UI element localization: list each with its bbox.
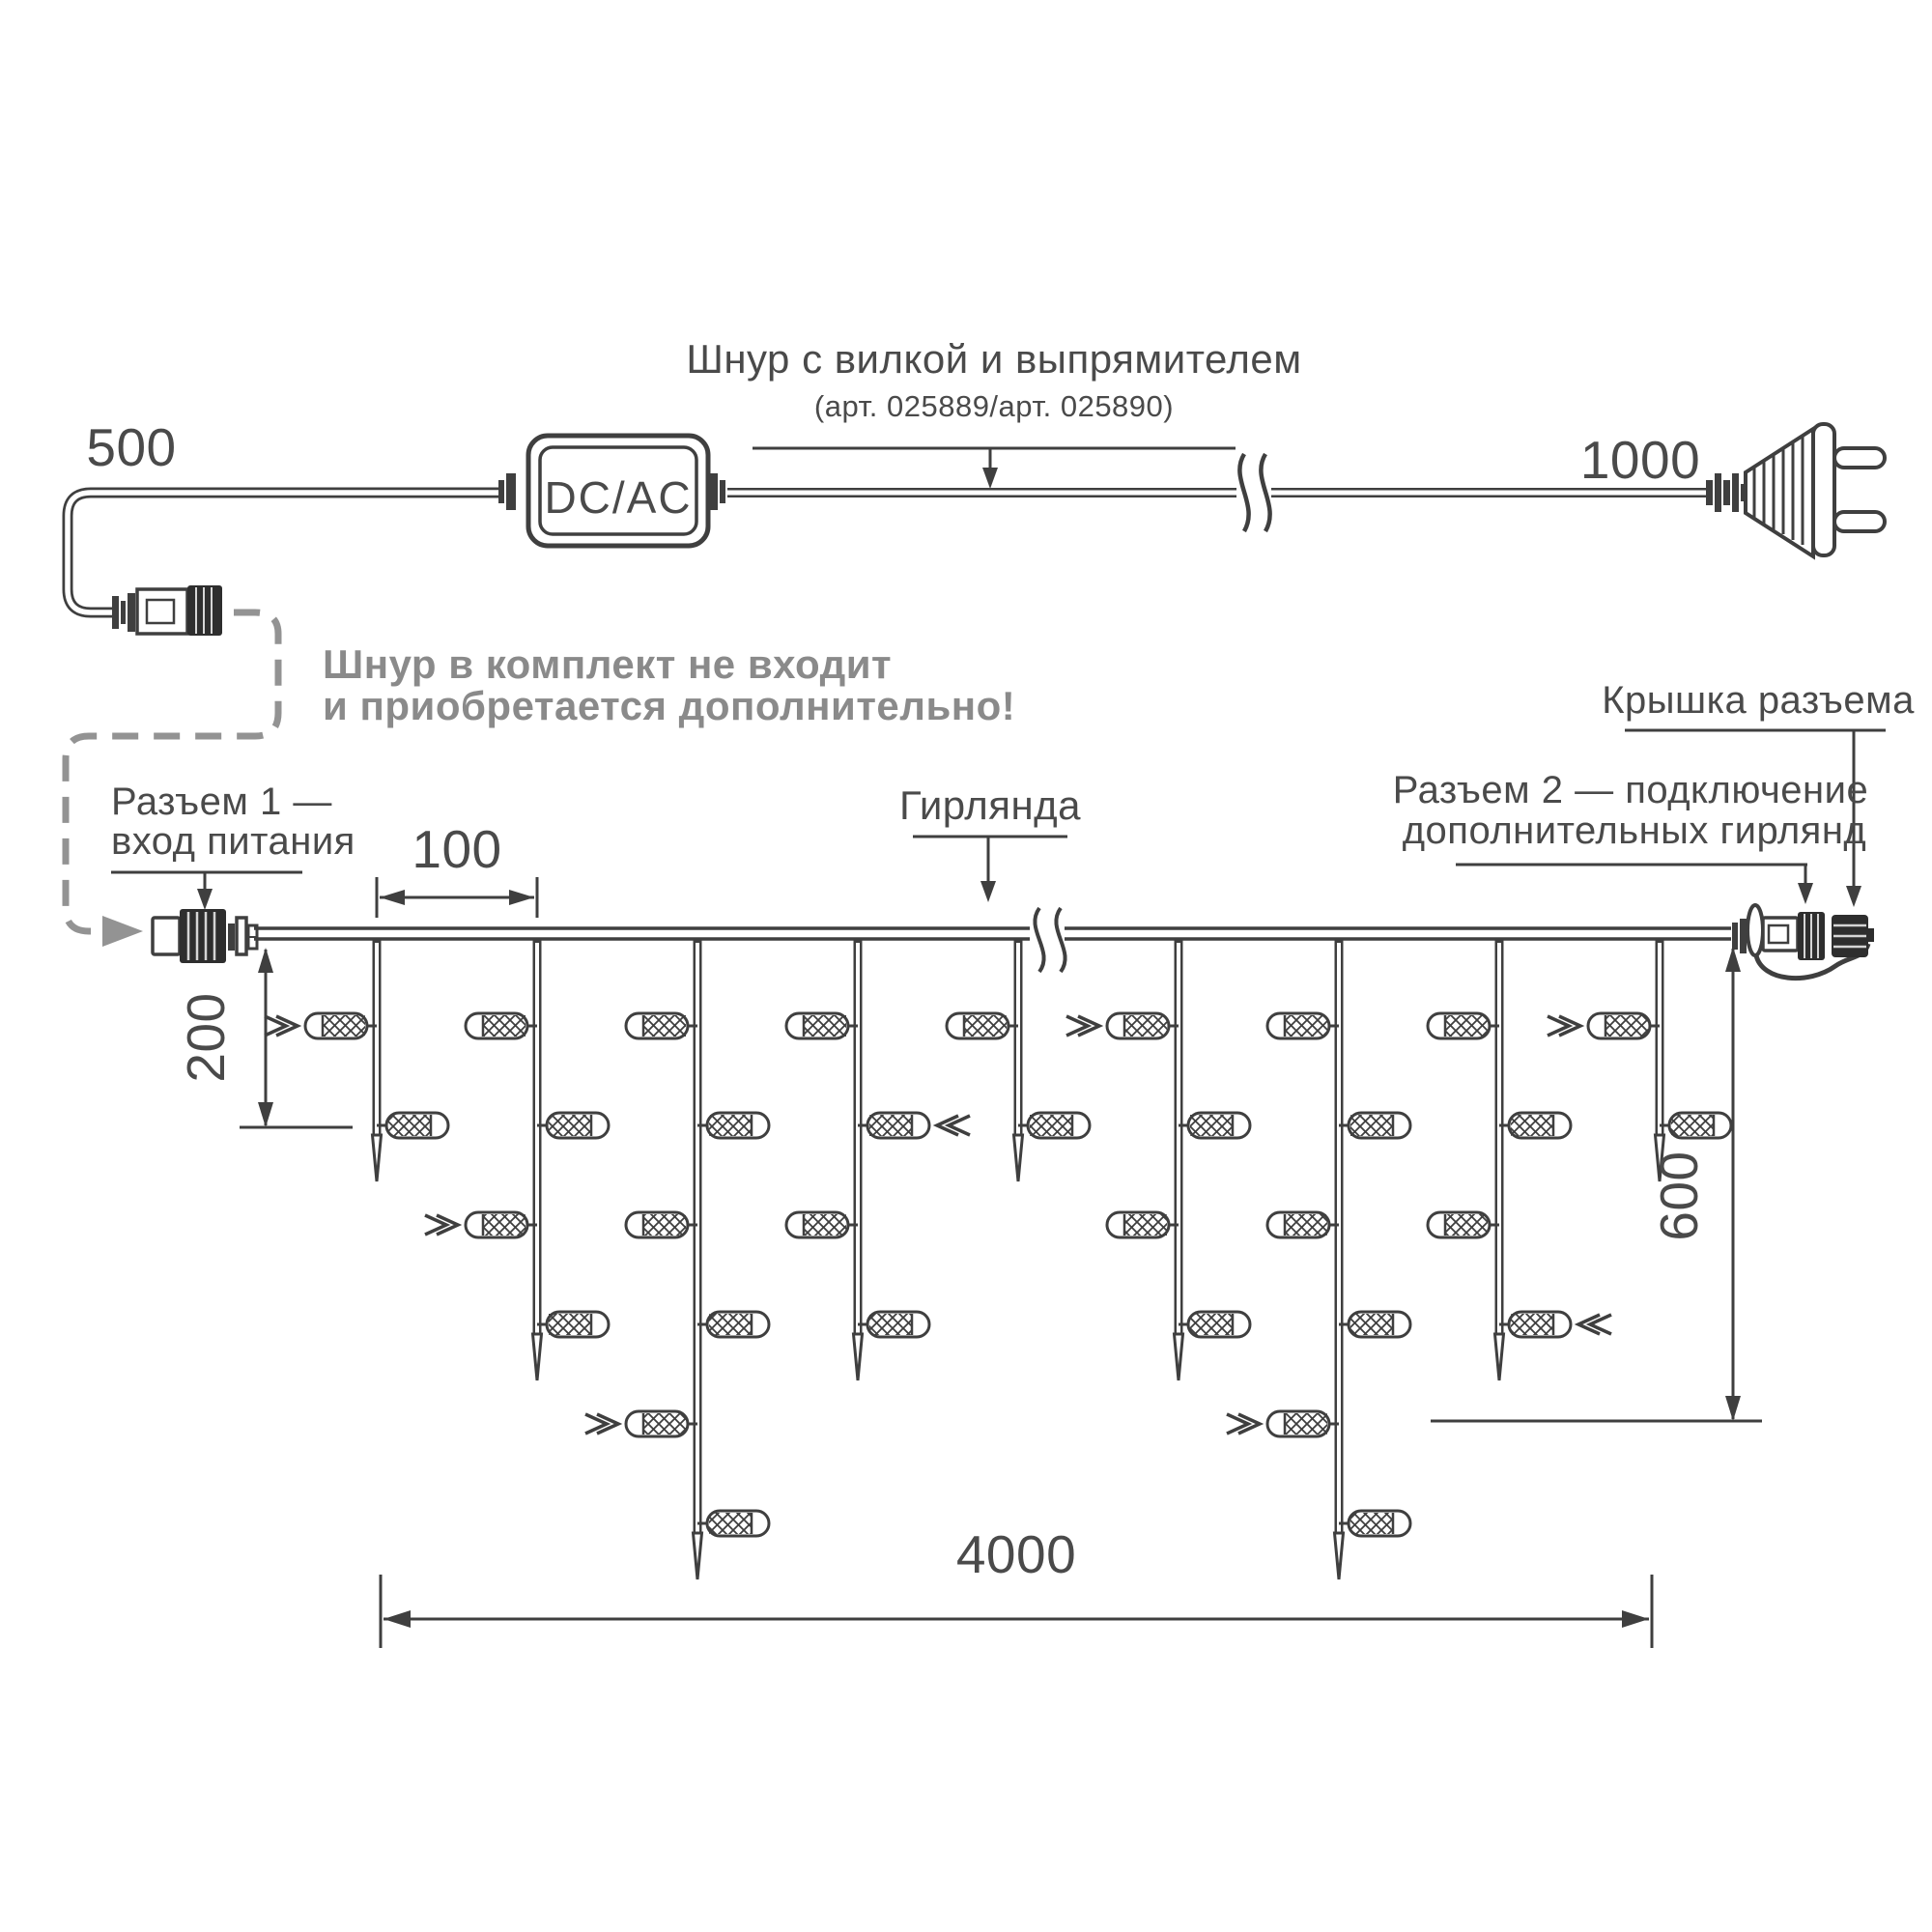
- led-bulb-hatch: [1511, 1314, 1553, 1335]
- note-line2: и приобретается дополнительно!: [323, 683, 1015, 728]
- led-bulb-hatch: [1511, 1115, 1553, 1136]
- led-bulb-hatch: [1445, 1015, 1488, 1037]
- pointer-chevron-right-icon: [585, 1414, 618, 1434]
- garland-input-connector-icon: [153, 909, 257, 963]
- dim-100: 100: [377, 819, 537, 918]
- led-bulb-hatch: [1445, 1214, 1488, 1236]
- dcac-converter: DC/AC: [498, 436, 725, 546]
- led-bulb-hatch: [388, 1115, 431, 1136]
- icicle-drop-tip: [694, 1533, 702, 1579]
- led-bulb-hatch: [549, 1115, 591, 1136]
- garland-label-leader: Гирлянда: [899, 782, 1081, 902]
- cord-break-icon: [1239, 454, 1248, 531]
- led-bulb-hatch: [643, 1214, 686, 1236]
- connector2-label-line1: Разъем 2 — подключение: [1393, 769, 1868, 811]
- led-bulb-hatch: [804, 1214, 846, 1236]
- cord-title-line2: (арт. 025889/арт. 025890): [814, 389, 1174, 423]
- led-bulb-hatch: [1605, 1015, 1648, 1037]
- pointer-chevron-right-icon: [1227, 1414, 1260, 1434]
- led-bulb-hatch: [1350, 1115, 1393, 1136]
- icicle-drop-tip: [1175, 1334, 1183, 1380]
- led-bulb-hatch: [964, 1015, 1007, 1037]
- dim-600-label: 600: [1649, 1151, 1709, 1240]
- leader-arrow-icon: [980, 881, 996, 902]
- led-bulb-hatch: [869, 1115, 912, 1136]
- led-bulb-hatch: [709, 1314, 752, 1335]
- icicle-drop-tip: [1014, 1135, 1023, 1181]
- led-bulb-hatch: [483, 1015, 526, 1037]
- dim-100-label: 100: [412, 819, 501, 879]
- led-bulb-hatch: [1285, 1015, 1327, 1037]
- led-bulb-hatch: [869, 1314, 912, 1335]
- dashed-arrow-icon: [102, 916, 143, 947]
- led-bulb-hatch: [1190, 1115, 1233, 1136]
- leader-arrow-icon: [982, 468, 998, 489]
- garland-label: Гирлянда: [899, 782, 1081, 828]
- led-bulb-hatch: [1285, 1413, 1327, 1435]
- icicle-drop-tip: [1335, 1533, 1344, 1579]
- dim-4000-label: 4000: [956, 1524, 1076, 1584]
- connector-cap-icon: [1832, 915, 1874, 957]
- connector1-leader: Разъем 1 — вход питания: [111, 781, 355, 910]
- garland-main-wire: [254, 908, 1731, 972]
- power-plug-icon: [1706, 424, 1885, 556]
- dim-500-label: 500: [86, 417, 176, 477]
- connector1-label-line2: вход питания: [111, 820, 355, 863]
- diagram-canvas: 500 DC/AC: [0, 0, 1932, 1932]
- leader-arrow-icon: [1846, 886, 1861, 907]
- wire-break-icon: [1035, 908, 1043, 972]
- led-bulb-hatch: [643, 1015, 686, 1037]
- led-bulb-hatch: [804, 1015, 846, 1037]
- not-included-dashed-path: [66, 612, 278, 947]
- pointer-chevron-left-icon: [1578, 1315, 1611, 1334]
- pointer-chevron-right-icon: [1548, 1016, 1580, 1036]
- led-bulb-hatch: [1350, 1314, 1393, 1335]
- garland-section: Разъем 1 — вход питания: [111, 679, 1915, 1648]
- led-bulb-hatch: [1190, 1314, 1233, 1335]
- led-bulb-hatch: [1124, 1015, 1167, 1037]
- led-bulb-hatch: [1350, 1513, 1393, 1534]
- led-bulb-hatch: [1124, 1214, 1167, 1236]
- pointer-chevron-right-icon: [1066, 1016, 1099, 1036]
- led-bulb-hatch: [1671, 1115, 1714, 1136]
- icicle-drop-tip: [1495, 1334, 1504, 1380]
- pointer-chevron-right-icon: [265, 1016, 298, 1036]
- led-bulb-hatch: [709, 1115, 752, 1136]
- led-bulb-hatch: [709, 1513, 752, 1534]
- connector2-label-line2: дополнительных гирлянд: [1403, 810, 1867, 852]
- led-bulb-hatch: [323, 1015, 365, 1037]
- led-bulb-hatch: [643, 1413, 686, 1435]
- dim-4000: 4000: [381, 1524, 1652, 1648]
- connector1-label-line1: Разъем 1 —: [111, 781, 332, 823]
- dcac-label: DC/AC: [544, 472, 692, 523]
- pointer-chevron-right-icon: [425, 1215, 458, 1235]
- icicle-drop-tip: [533, 1334, 542, 1380]
- leader-arrow-icon: [197, 889, 213, 910]
- cord-title-leader: Шнур с вилкой и выпрямителем (арт. 02588…: [686, 336, 1301, 489]
- icicle-drop-tip: [854, 1334, 863, 1380]
- icicle-drop-tip: [373, 1135, 382, 1181]
- cord-1000: [727, 454, 1708, 531]
- icicle-drops-group: [265, 939, 1731, 1579]
- pointer-chevron-left-icon: [937, 1116, 970, 1135]
- leader-arrow-icon: [1798, 883, 1813, 904]
- garland-wiring-diagram: 500 DC/AC: [0, 0, 1932, 1932]
- dim-200-label: 200: [176, 992, 236, 1082]
- cord-title-line1: Шнур с вилкой и выпрямителем: [686, 336, 1301, 382]
- connector2-leader: Разъем 2 — подключение дополнительных ги…: [1393, 769, 1868, 904]
- garland-output-connector-icon: [1732, 905, 1874, 979]
- note-line1: Шнур в комплект не входит: [323, 641, 892, 687]
- led-bulb-hatch: [1030, 1115, 1072, 1136]
- cord-connector-icon: [112, 585, 222, 636]
- led-bulb-hatch: [483, 1214, 526, 1236]
- cap-label: Крышка разъема: [1602, 679, 1915, 722]
- led-bulb-hatch: [1285, 1214, 1327, 1236]
- led-bulb-hatch: [549, 1314, 591, 1335]
- dim-1000-label: 1000: [1580, 430, 1700, 490]
